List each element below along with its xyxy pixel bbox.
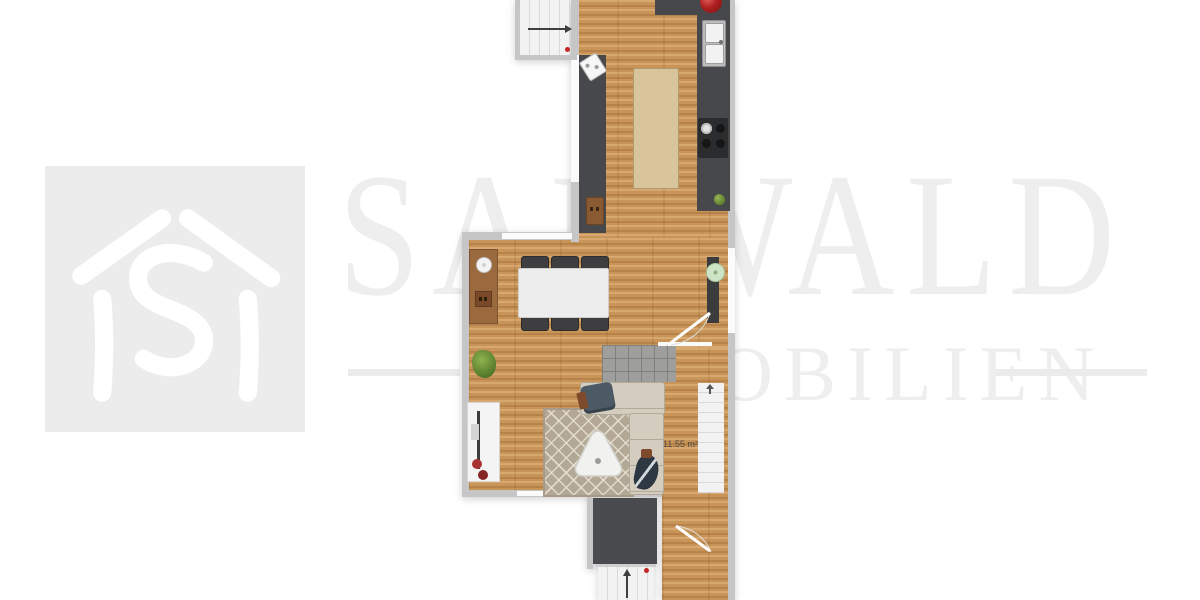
door-swing-dining <box>656 305 714 349</box>
box-hole <box>479 297 482 301</box>
plan-marker-dot <box>565 47 570 52</box>
appliance-knob <box>594 64 600 70</box>
dining-right-window <box>728 248 735 333</box>
stove-burner <box>702 139 711 148</box>
arrow-head-icon <box>565 25 572 33</box>
crate-hole <box>590 207 593 211</box>
screenshot-canvas: SARWALD IMMOBILIEN <box>0 0 1200 600</box>
watermark-dash-left <box>348 369 460 376</box>
dining-top-window <box>502 233 572 239</box>
house-s-logo-icon <box>45 166 305 432</box>
bottom-dark-block <box>593 498 657 564</box>
appliance-knob <box>585 63 591 69</box>
dining-table <box>518 268 609 318</box>
agency-logo <box>45 166 305 432</box>
stairs-direction-arrow <box>528 28 566 30</box>
arrow-head-icon <box>623 569 631 576</box>
stove-burner <box>716 124 725 133</box>
stove-icon <box>698 118 728 158</box>
shelf-plant-icon <box>706 263 725 282</box>
pouf-icon <box>472 459 482 469</box>
watermark-dash-right <box>995 369 1147 376</box>
cushion-icon <box>641 449 652 458</box>
wood-crate-icon <box>586 197 604 225</box>
top-stairs-bottom-wall <box>515 55 577 60</box>
sink-icon <box>702 20 726 67</box>
staircase-right <box>698 383 724 493</box>
room-area-label: 11.55 m² <box>663 439 698 449</box>
door-swing-bottom <box>662 514 716 556</box>
arrow-head-icon <box>706 384 714 389</box>
sink-basin <box>705 44 724 64</box>
table-lamp-icon <box>476 257 492 273</box>
stove-burner <box>701 123 712 134</box>
kitchen-island <box>633 68 679 189</box>
kitchen-left-window <box>571 55 579 182</box>
box-hole <box>484 297 487 301</box>
sideboard <box>469 249 498 324</box>
faucet-icon <box>719 40 723 44</box>
media-box <box>471 424 479 440</box>
sideboard-box <box>475 291 492 307</box>
pouf-icon <box>478 470 488 480</box>
entry-tile-floor <box>602 345 676 382</box>
stove-burner <box>716 139 725 148</box>
potted-plant-icon <box>472 350 496 378</box>
coffee-table <box>571 428 625 479</box>
crate-hole <box>596 207 599 211</box>
plan-marker-dot <box>644 568 649 573</box>
stairs-direction-arrow <box>626 574 628 598</box>
counter-plant-icon <box>714 194 725 205</box>
